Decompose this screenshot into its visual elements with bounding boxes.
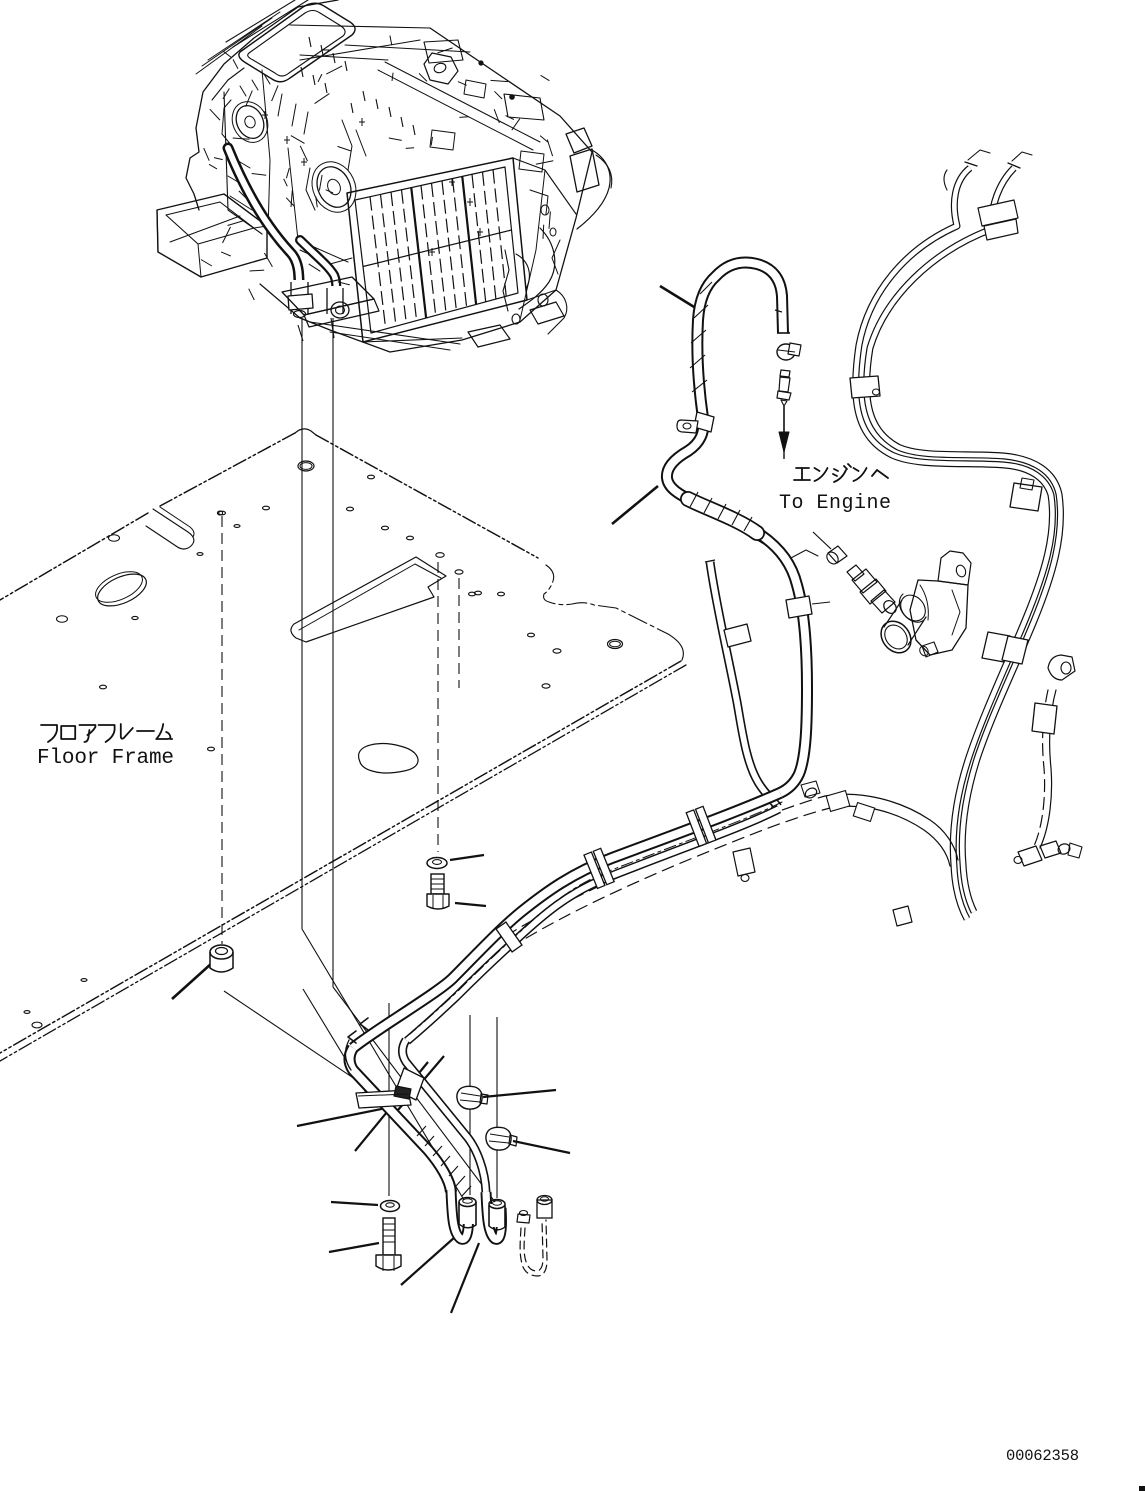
- svg-text:To Engine: To Engine: [779, 492, 891, 515]
- svg-text:00062358: 00062358: [1006, 1447, 1079, 1465]
- svg-text:Floor Frame: Floor Frame: [37, 747, 174, 770]
